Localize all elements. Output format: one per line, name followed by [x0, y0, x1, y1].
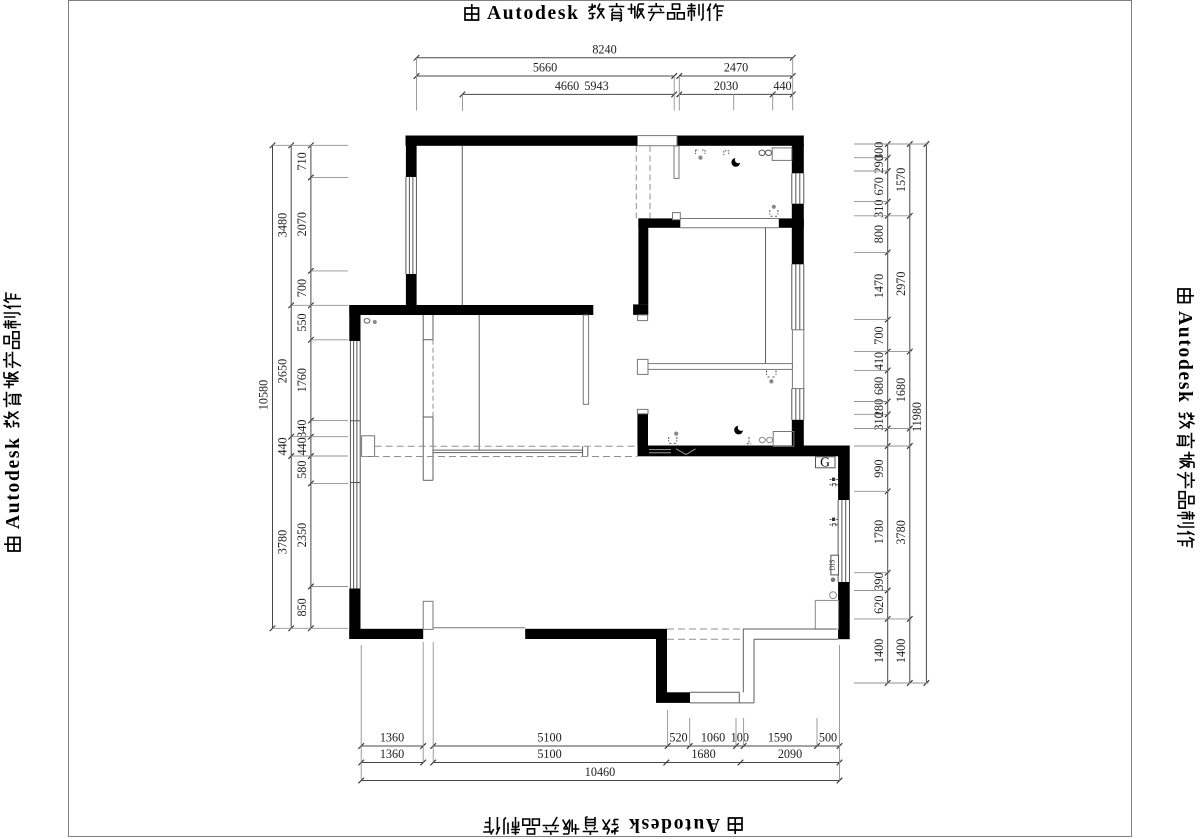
svg-text:2030: 2030: [714, 79, 738, 93]
svg-text:1470: 1470: [872, 274, 886, 298]
svg-text:620: 620: [872, 596, 886, 614]
svg-text:11980: 11980: [910, 402, 924, 432]
svg-text:10580: 10580: [257, 380, 271, 410]
svg-text:340: 340: [295, 420, 309, 438]
svg-text:3780: 3780: [276, 530, 290, 554]
svg-text:1760: 1760: [295, 368, 309, 392]
svg-text:1060: 1060: [701, 731, 725, 745]
svg-text:1570: 1570: [894, 168, 908, 192]
svg-text:670: 670: [872, 177, 886, 195]
svg-text:800: 800: [872, 225, 886, 243]
svg-text:1400: 1400: [894, 639, 908, 663]
svg-text:310: 310: [872, 412, 886, 430]
svg-text:310: 310: [872, 200, 886, 218]
svg-text:1360: 1360: [380, 731, 404, 745]
svg-text:2650: 2650: [276, 359, 290, 383]
svg-text:1360: 1360: [380, 747, 404, 761]
svg-text:410: 410: [872, 352, 886, 370]
svg-text:520: 520: [669, 731, 687, 745]
svg-text:2090: 2090: [778, 747, 802, 761]
svg-text:5100: 5100: [537, 731, 561, 745]
svg-text:440: 440: [276, 437, 290, 455]
svg-text:5943: 5943: [584, 79, 608, 93]
svg-text:2970: 2970: [894, 272, 908, 296]
svg-text:390: 390: [872, 572, 886, 590]
svg-text:1590: 1590: [768, 731, 792, 745]
svg-text:3780: 3780: [894, 520, 908, 544]
svg-text:5100: 5100: [537, 747, 561, 761]
svg-text:2470: 2470: [724, 61, 748, 75]
svg-text:700: 700: [295, 279, 309, 297]
svg-text:680: 680: [872, 377, 886, 395]
svg-text:550: 550: [295, 313, 309, 331]
svg-text:10460: 10460: [585, 765, 615, 779]
svg-text:580: 580: [295, 461, 309, 479]
svg-text:1680: 1680: [894, 378, 908, 402]
svg-text:710: 710: [295, 152, 309, 170]
svg-text:700: 700: [872, 326, 886, 344]
svg-text:500: 500: [819, 731, 837, 745]
svg-text:DIS: DIS: [830, 559, 837, 570]
svg-text:2070: 2070: [295, 212, 309, 236]
svg-text:850: 850: [295, 598, 309, 616]
svg-text:100: 100: [731, 731, 749, 745]
svg-text:4660: 4660: [555, 79, 579, 93]
svg-text:5660: 5660: [533, 61, 557, 75]
svg-text:G: G: [820, 454, 830, 469]
svg-text:1680: 1680: [691, 747, 715, 761]
svg-text:440: 440: [773, 79, 791, 93]
svg-text:3480: 3480: [276, 213, 290, 237]
svg-text:1780: 1780: [872, 520, 886, 544]
svg-text:440: 440: [295, 437, 309, 455]
svg-text:8240: 8240: [592, 42, 616, 56]
svg-text:2350: 2350: [295, 523, 309, 547]
svg-text:1400: 1400: [872, 639, 886, 663]
svg-text:990: 990: [872, 459, 886, 477]
